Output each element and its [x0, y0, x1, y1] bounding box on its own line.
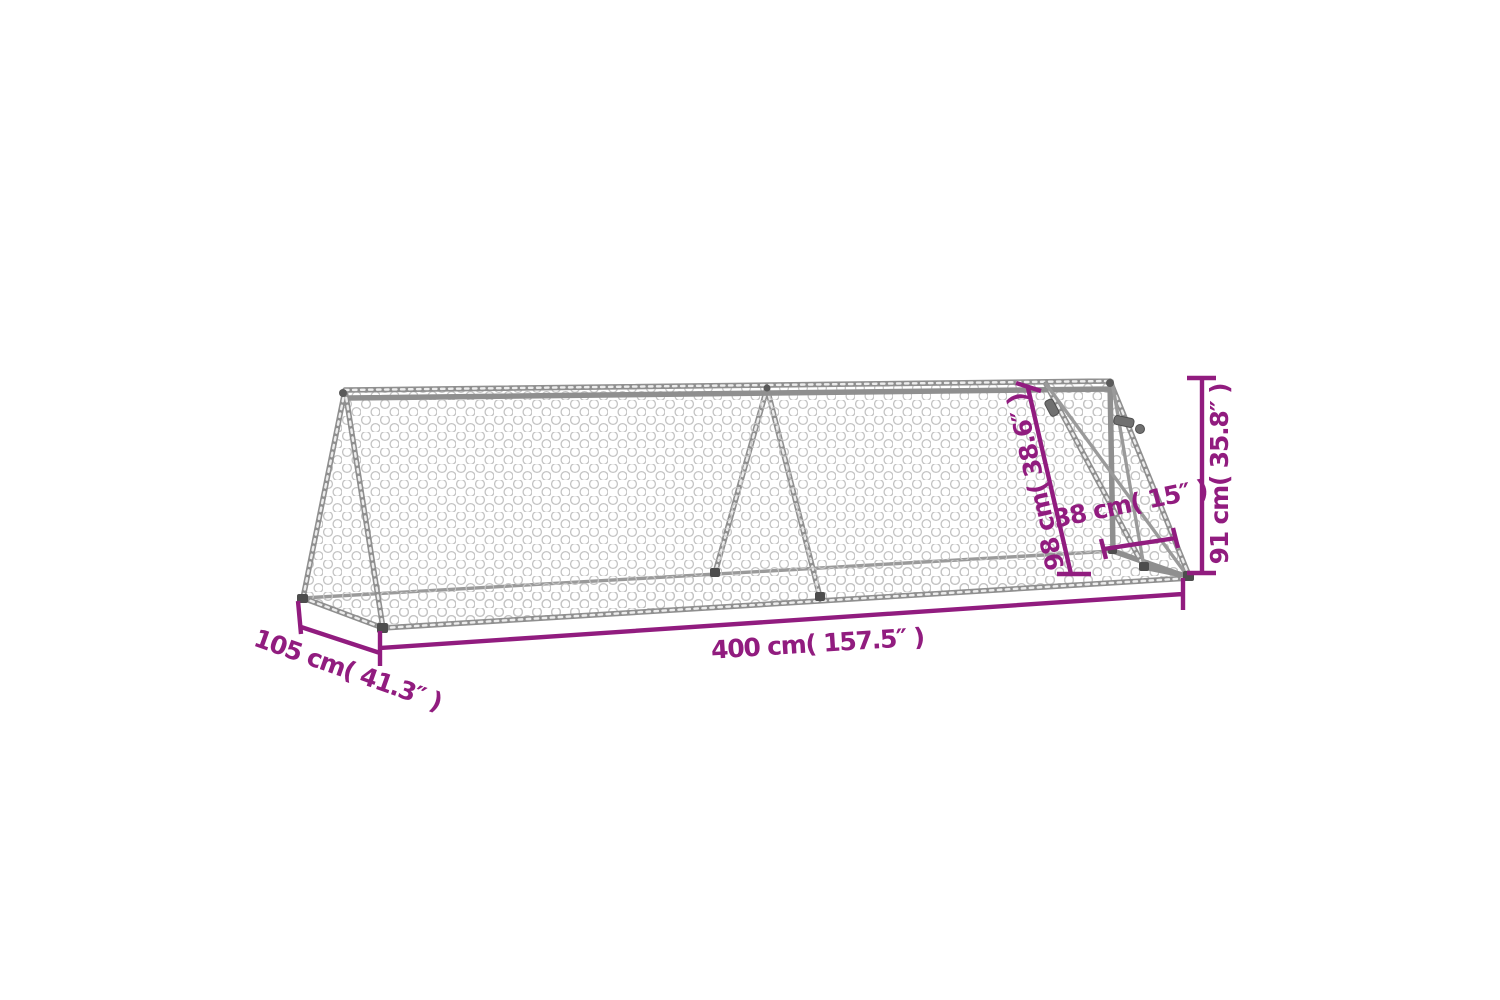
door-latch-knob-icon	[1136, 425, 1145, 434]
dimension-depth-label: 105 cm( 41.3″ )	[250, 623, 445, 716]
diagram-canvas: 105 cm( 41.3″ ) 400 cm( 157.5″ ) 98 cm( …	[0, 0, 1500, 1000]
dimension-height-label: 91 cm( 35.8″ )	[1205, 384, 1234, 565]
dimension-length-label: 400 cm( 157.5″ )	[710, 622, 924, 664]
